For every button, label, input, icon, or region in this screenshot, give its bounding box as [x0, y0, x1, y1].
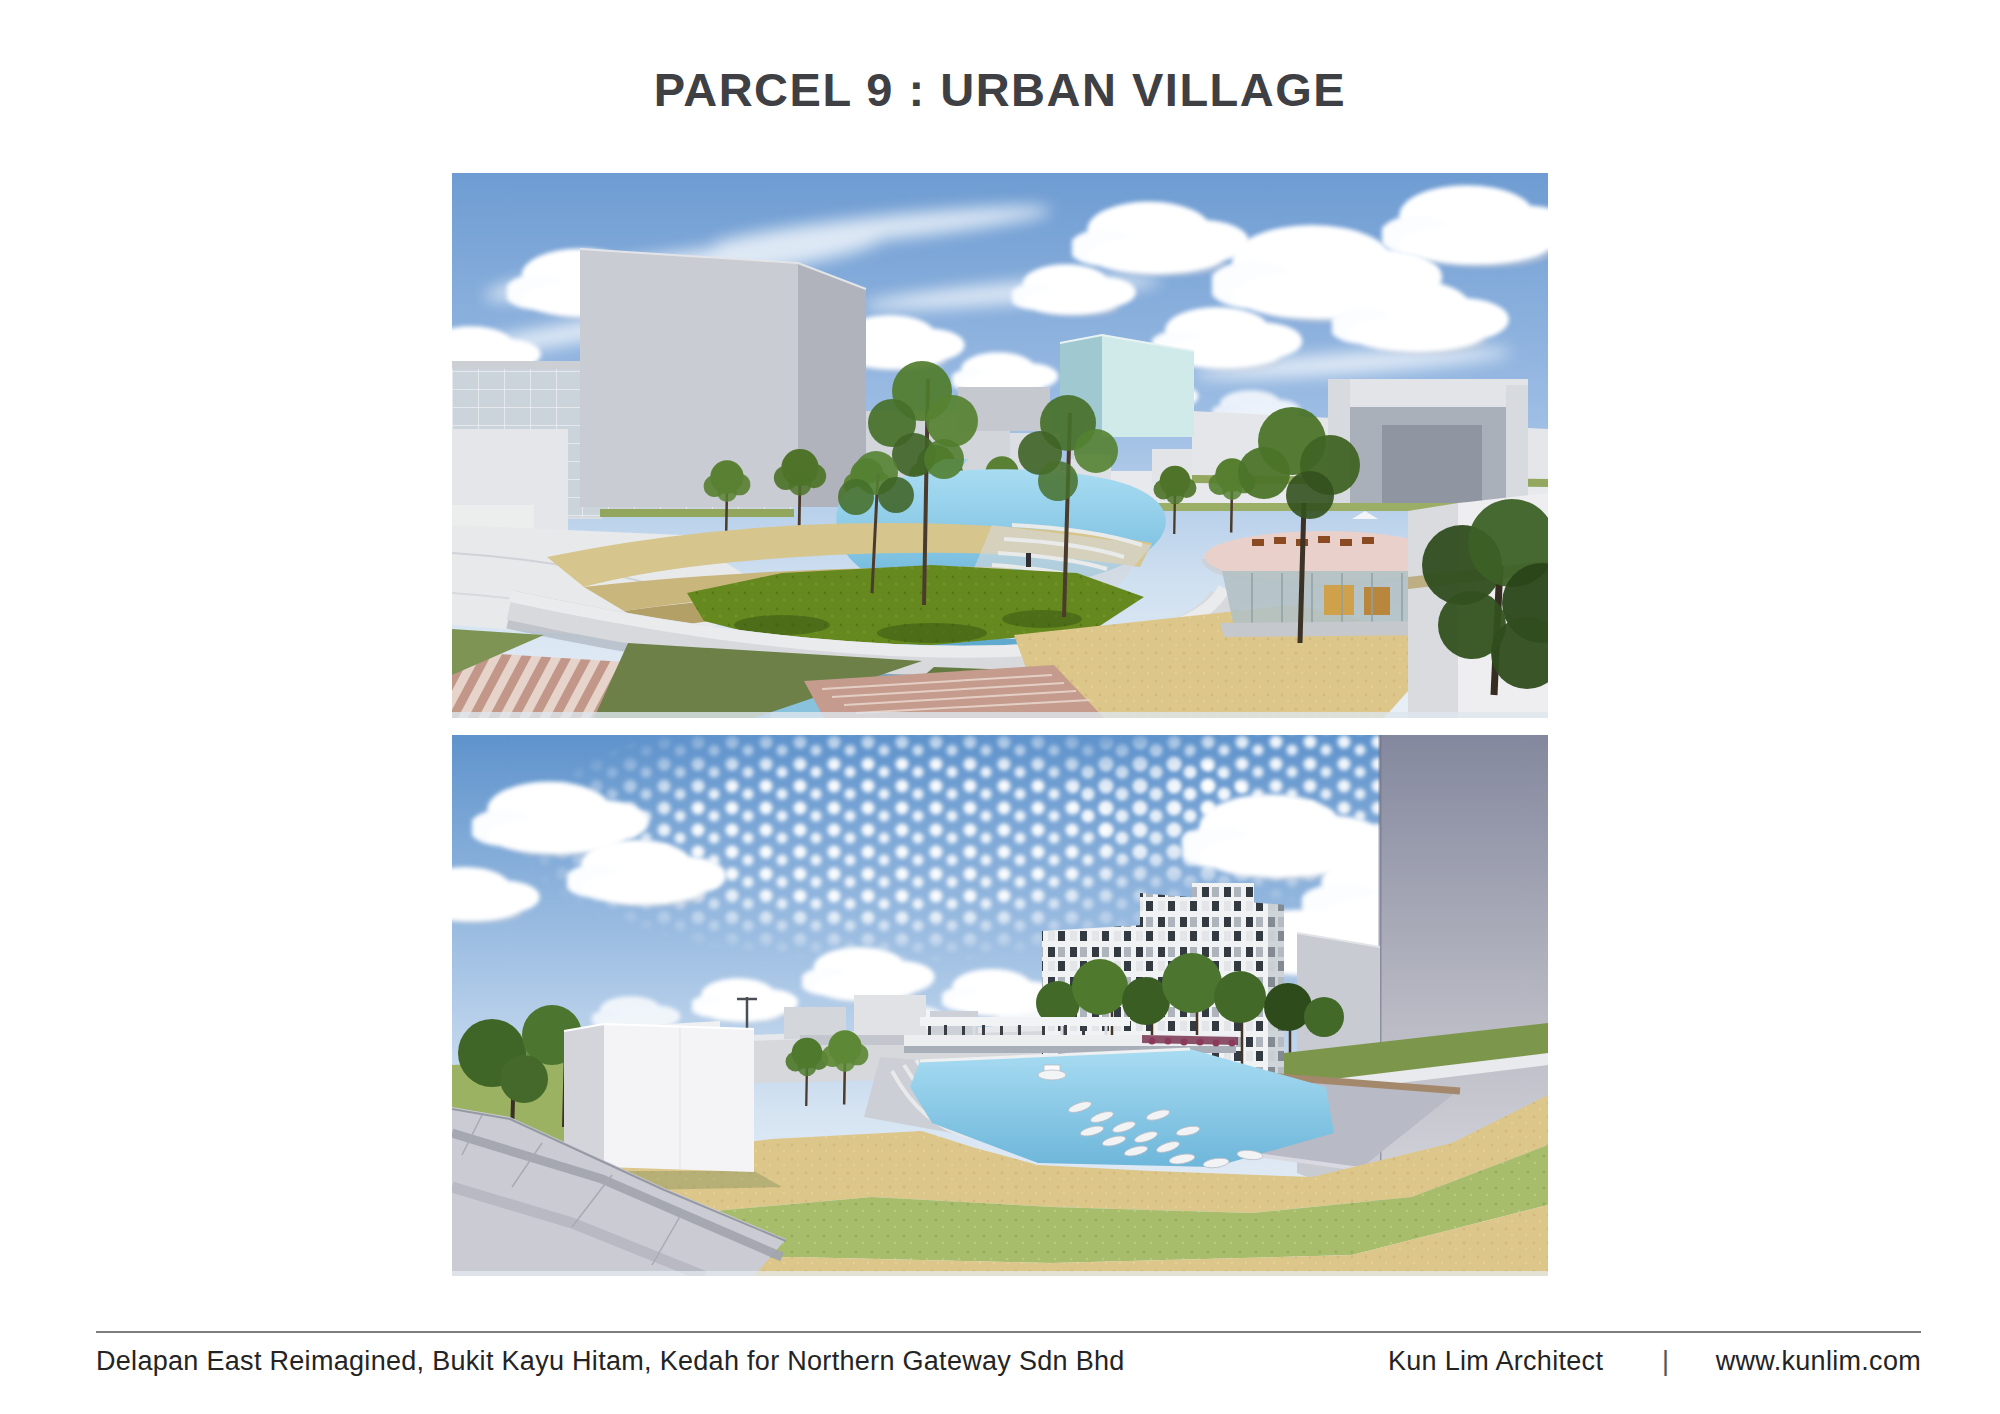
footer-firm-name: Kun Lim Architect [1388, 1346, 1603, 1377]
footer-project-text: Delapan East Reimagined, Bukit Kayu Hita… [96, 1346, 1125, 1377]
footer-divider [96, 1331, 1921, 1333]
footer-separator: | [1662, 1346, 1669, 1377]
page-title: PARCEL 9 : URBAN VILLAGE [0, 62, 2000, 117]
render-bottom-image [452, 735, 1548, 1276]
render-bottom-figure [452, 735, 1548, 1276]
slide: PARCEL 9 : URBAN VILLAGE [0, 0, 2000, 1414]
render-top-image [452, 173, 1548, 718]
render-top-figure [452, 173, 1548, 718]
footer-website-url: www.kunlim.com [1716, 1346, 1921, 1377]
